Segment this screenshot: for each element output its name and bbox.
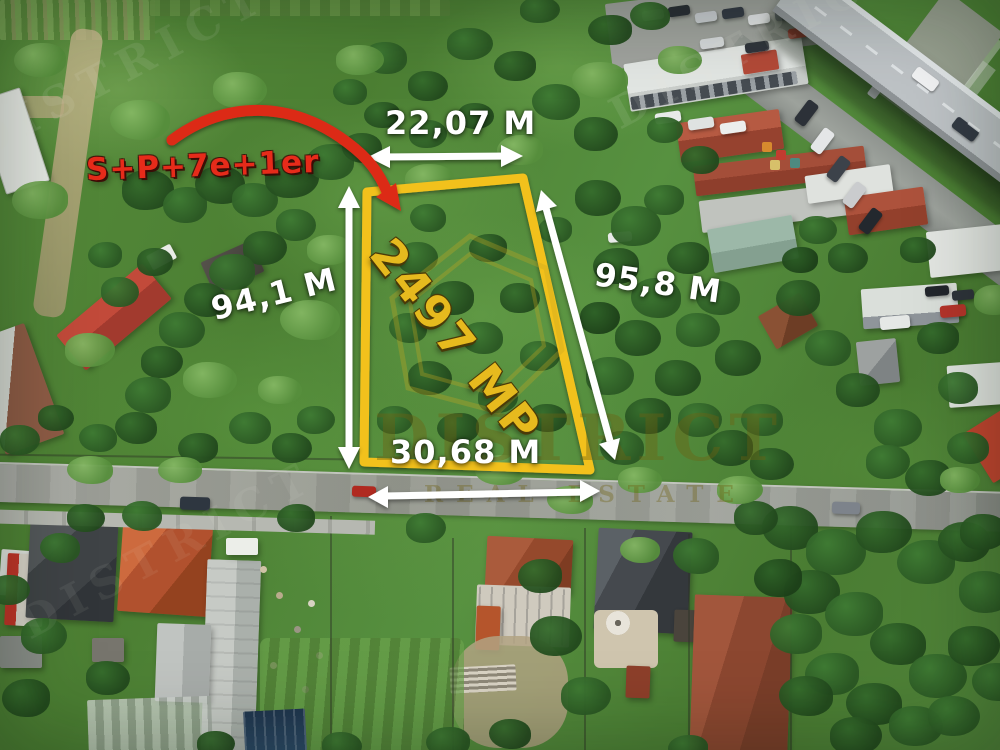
watermark-ghost: DISTRICT	[601, 0, 915, 140]
watermark-ghost: DISTRICT	[11, 451, 325, 650]
dimension-bottom: 30,68 M	[390, 433, 541, 471]
dimension-top: 22,07 M	[385, 104, 536, 142]
watermark-ghost: DISTRICT	[0, 0, 277, 169]
aerial-photo: DISTRICT REAL ESTATE DISTRICT DISTRICT D…	[0, 0, 1000, 750]
